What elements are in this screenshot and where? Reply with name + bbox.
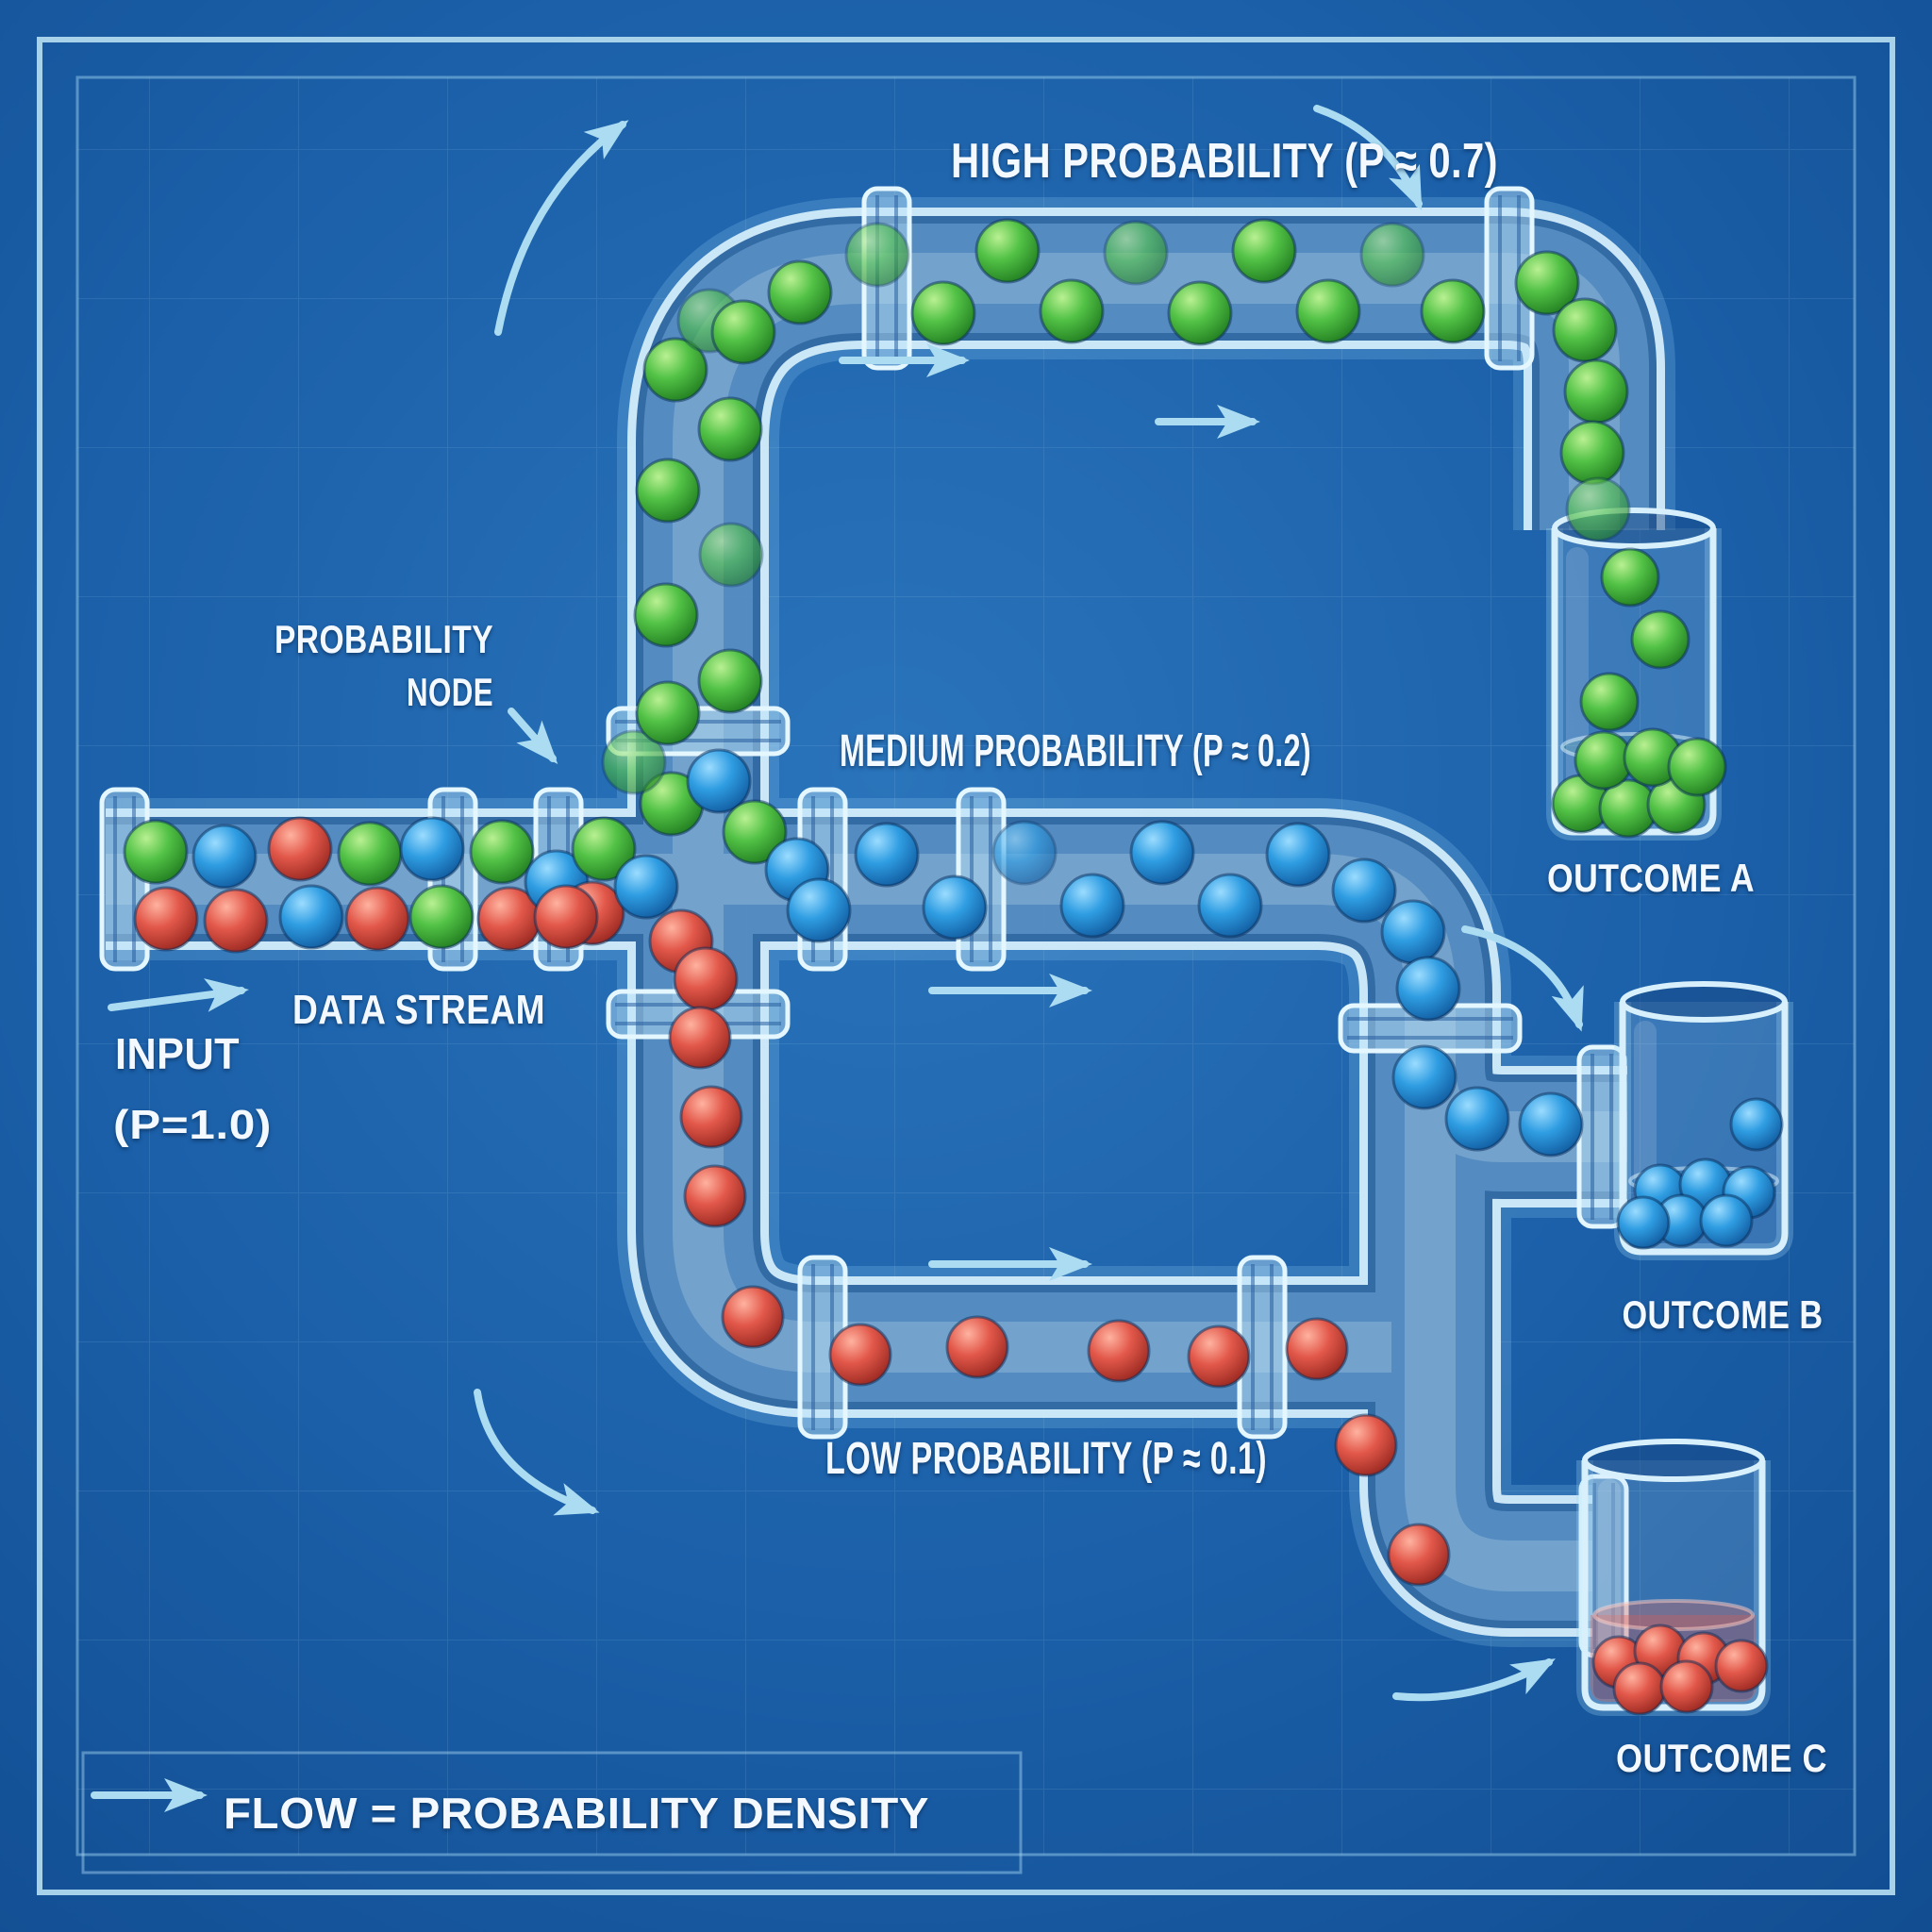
green-ball — [1554, 299, 1616, 361]
red-ball — [535, 886, 597, 948]
red-ball — [1089, 1321, 1149, 1381]
blue-ball — [280, 886, 342, 948]
green-ball — [637, 682, 699, 744]
input-probability-label: (P=1.0) — [113, 1102, 272, 1148]
low-probability-label: LOW PROBABILITY (P ≈ 0.1) — [825, 1434, 1267, 1484]
red-ball — [1389, 1524, 1449, 1585]
red-ball — [1614, 1663, 1665, 1714]
red-ball — [1661, 1661, 1712, 1712]
legend-label: FLOW = PROBABILITY DENSITY — [224, 1789, 929, 1838]
probability-node-label-line1: PROBABILITY — [275, 617, 493, 661]
probability-node-label-line2: NODE — [407, 670, 493, 714]
blue-ball — [1061, 874, 1124, 937]
blue-ball — [1267, 824, 1329, 886]
green-ball — [700, 524, 762, 586]
green-ball — [1669, 739, 1725, 795]
blue-ball — [1701, 1195, 1752, 1246]
green-ball — [1561, 422, 1624, 484]
green-ball — [637, 459, 699, 522]
blue-ball — [1131, 822, 1193, 884]
outcome-c-label: OUTCOME C — [1616, 1736, 1827, 1780]
probability-pipes-svg: HIGH PROBABILITY (P ≈ 0.7) MEDIUM PROBAB… — [0, 0, 1932, 1932]
green-ball — [1632, 611, 1689, 668]
blue-ball — [1446, 1088, 1508, 1150]
blue-ball — [615, 856, 677, 918]
red-ball — [1287, 1319, 1347, 1379]
green-ball — [769, 261, 831, 324]
red-ball — [723, 1287, 783, 1347]
red-ball — [830, 1324, 891, 1385]
red-ball — [670, 1008, 730, 1068]
green-ball — [1169, 282, 1231, 344]
data-stream-label: DATA STREAM — [292, 987, 545, 1033]
input-label: INPUT — [115, 1029, 240, 1078]
blue-ball — [401, 818, 463, 880]
red-ball — [205, 890, 267, 952]
green-ball — [1567, 478, 1629, 541]
red-ball — [1716, 1641, 1767, 1691]
red-ball — [135, 888, 197, 950]
green-ball — [912, 282, 974, 344]
green-ball — [699, 650, 761, 712]
red-ball — [346, 888, 408, 950]
green-ball — [125, 821, 187, 883]
green-ball — [712, 301, 774, 363]
blue-ball — [1382, 901, 1444, 963]
blue-ball — [1618, 1197, 1669, 1248]
green-ball — [1581, 674, 1638, 730]
blue-ball — [1333, 859, 1395, 922]
green-ball — [976, 220, 1039, 282]
green-ball — [635, 584, 697, 646]
green-ball — [1297, 280, 1359, 342]
medium-probability-label: MEDIUM PROBABILITY (P ≈ 0.2) — [840, 726, 1311, 776]
green-ball — [1105, 222, 1167, 284]
green-ball — [1233, 220, 1295, 282]
green-ball — [1602, 549, 1658, 606]
blueprint-diagram: HIGH PROBABILITY (P ≈ 0.7) MEDIUM PROBAB… — [0, 0, 1932, 1932]
green-ball — [1361, 224, 1424, 286]
blue-ball — [1397, 958, 1459, 1020]
beaker-rim — [1623, 984, 1785, 1020]
beaker-rim — [1585, 1441, 1762, 1479]
red-ball — [675, 948, 737, 1010]
green-ball — [471, 821, 533, 883]
green-ball — [846, 224, 908, 286]
green-ball — [1422, 280, 1484, 342]
high-probability-label: HIGH PROBABILITY (P ≈ 0.7) — [951, 134, 1498, 189]
outcome-b-label: OUTCOME B — [1623, 1292, 1824, 1337]
blue-ball — [788, 879, 850, 941]
blue-ball — [856, 824, 918, 886]
green-ball — [699, 398, 761, 460]
green-ball — [410, 886, 473, 948]
blue-ball — [924, 876, 986, 939]
green-ball — [1565, 360, 1627, 423]
blue-ball — [193, 825, 256, 888]
green-ball — [339, 823, 401, 885]
blue-ball — [993, 822, 1056, 884]
blue-ball — [1393, 1046, 1456, 1108]
red-ball — [1189, 1326, 1249, 1387]
red-ball — [1336, 1415, 1396, 1475]
blue-ball — [1520, 1093, 1582, 1156]
blue-ball — [1731, 1099, 1782, 1150]
red-ball — [681, 1087, 741, 1147]
outcome-a-label: OUTCOME A — [1547, 856, 1755, 900]
red-ball — [269, 818, 331, 880]
blue-ball — [1199, 874, 1261, 937]
green-ball — [1041, 280, 1103, 342]
red-ball — [685, 1166, 745, 1226]
red-ball — [947, 1317, 1008, 1377]
